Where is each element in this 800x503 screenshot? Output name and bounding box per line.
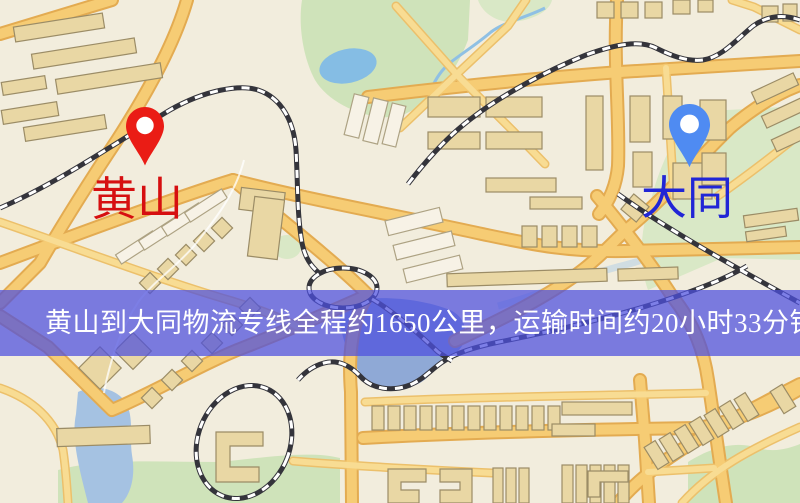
map-canvas [0,0,800,503]
destination-label: 大同 [641,176,733,222]
origin-label: 黄山 [91,177,183,223]
route-info-banner: 黄山到大同物流专线全程约1650公里，运输时间约20小时33分钟. [0,290,800,356]
route-info-text: 黄山到大同物流专线全程约1650公里，运输时间约20小时33分钟. [0,290,800,356]
map-screenshot: 黄山 大同 黄山到大同物流专线全程约1650公里，运输时间约20小时33分钟. [0,0,800,503]
